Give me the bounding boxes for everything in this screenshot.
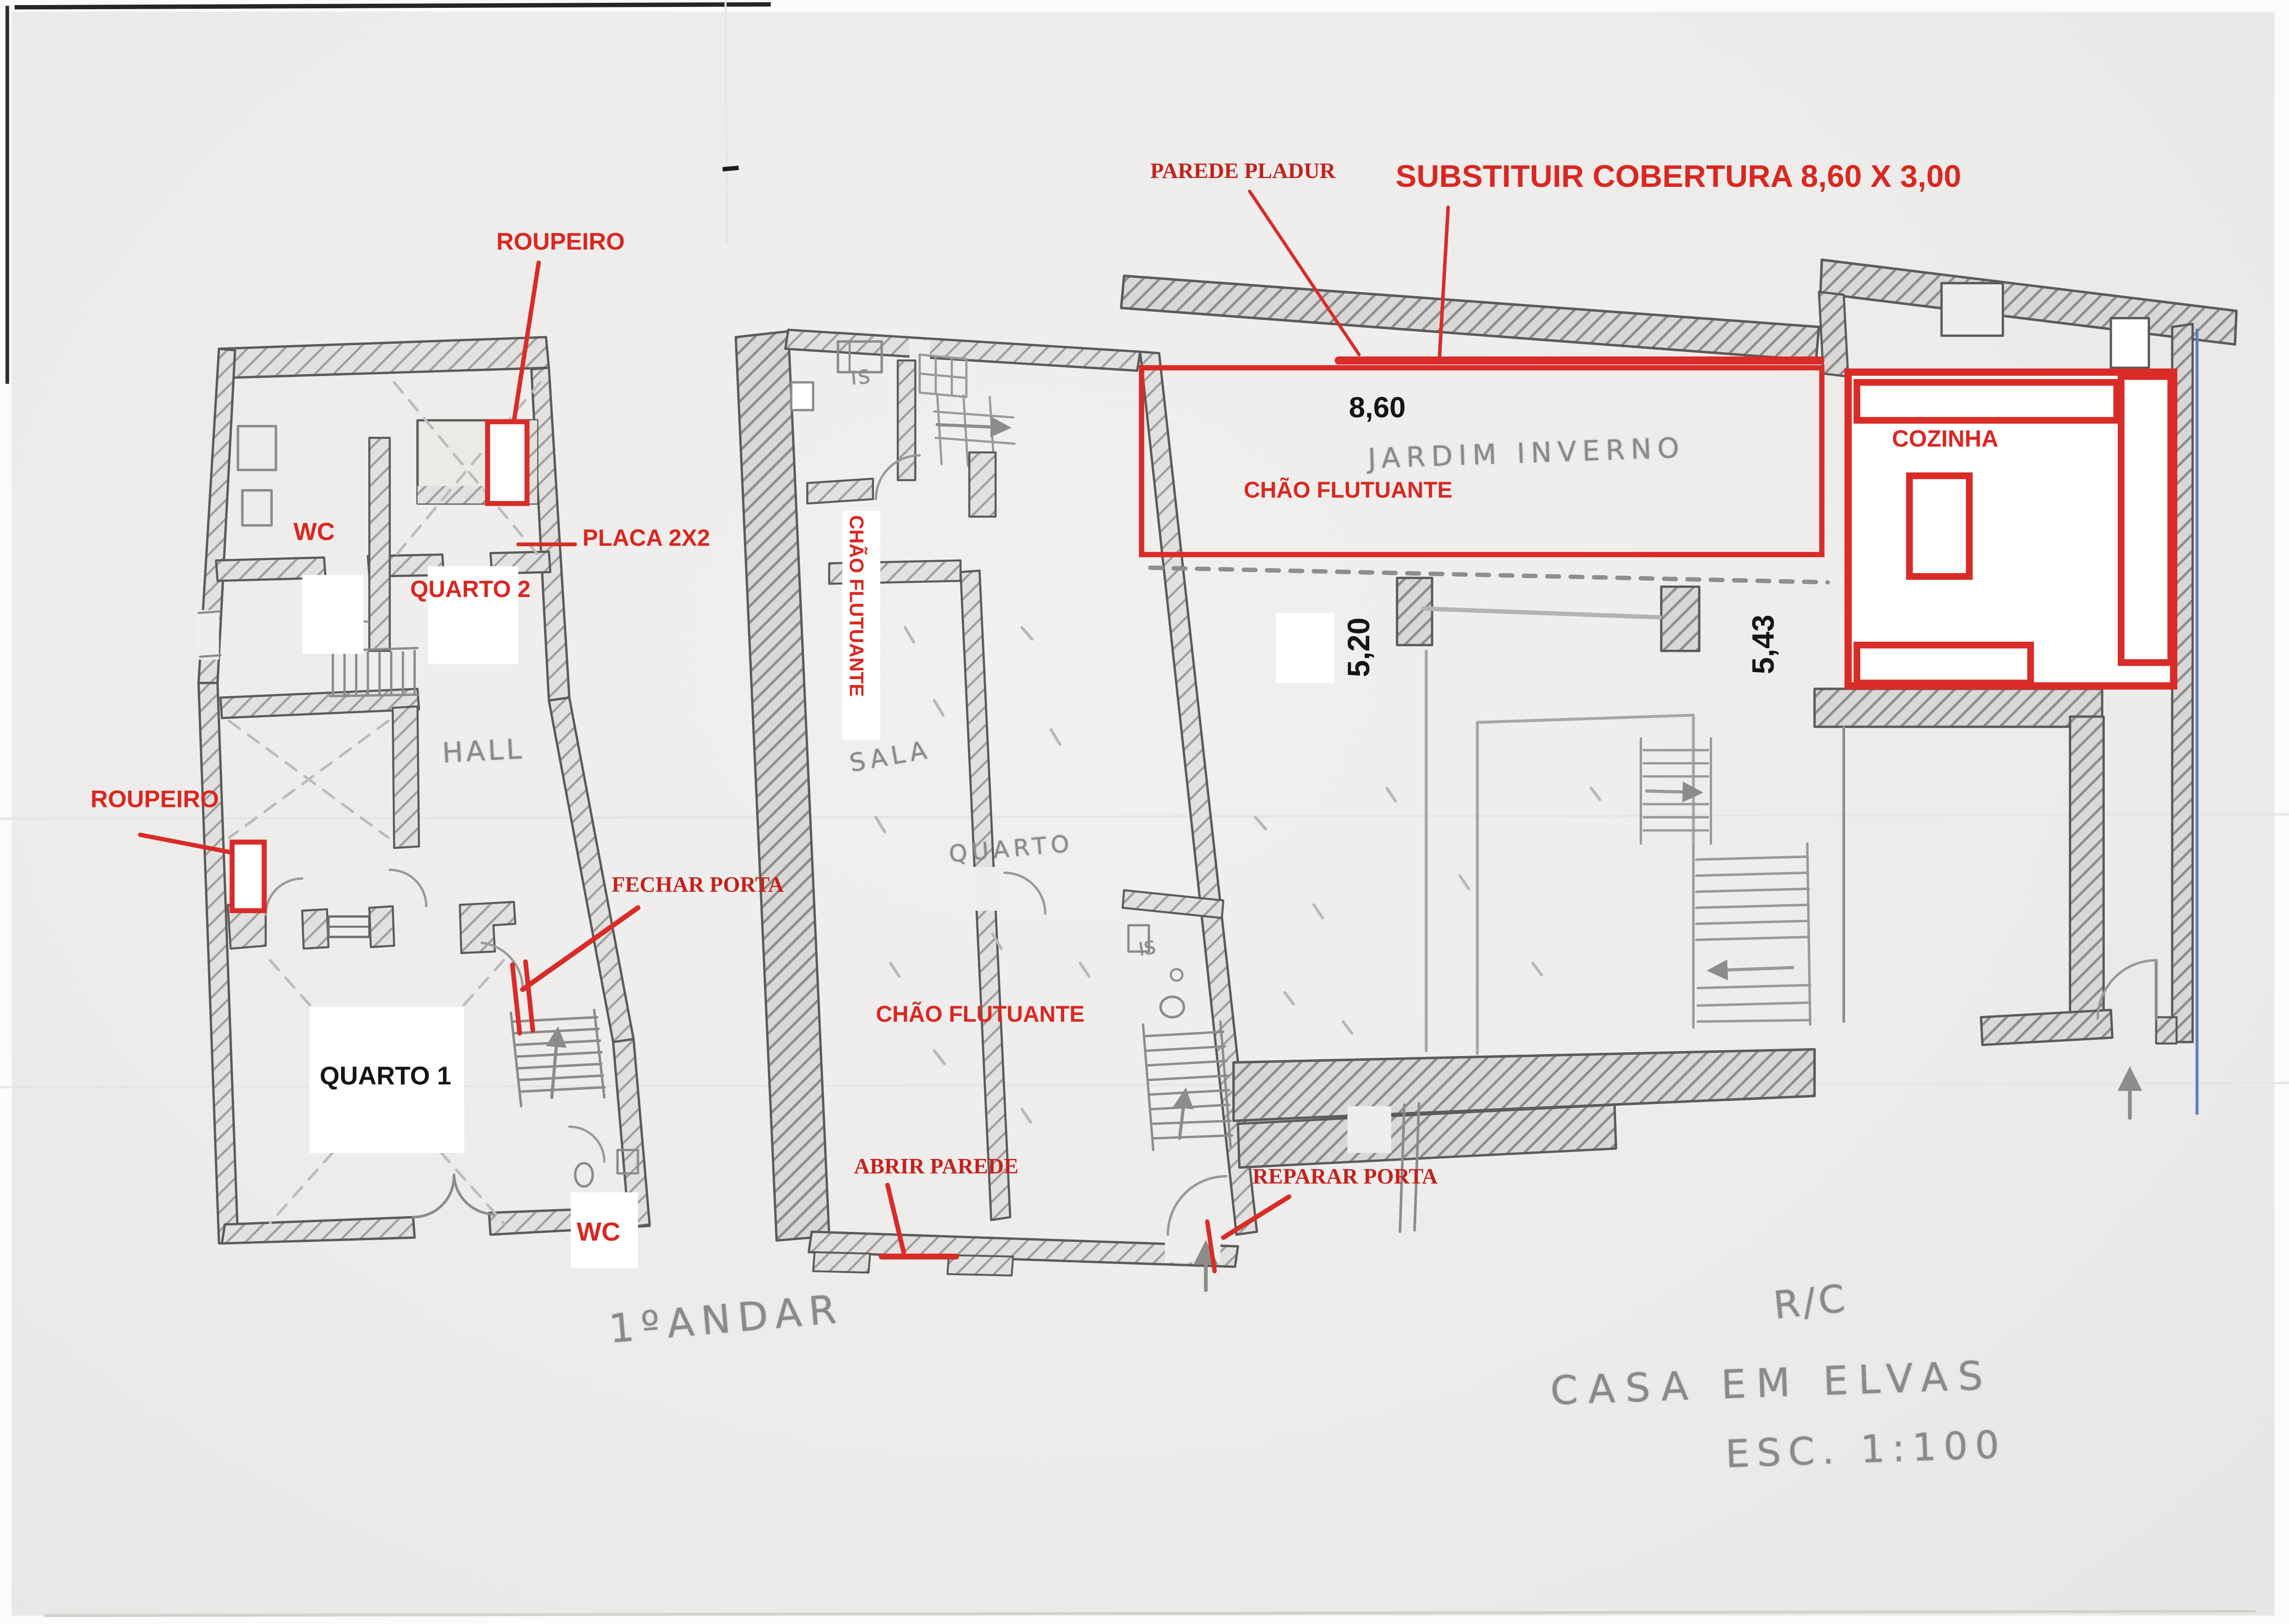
roupeiro-left-box [232, 842, 264, 911]
dimension-5-43: 5,43 [1749, 615, 1781, 674]
annotation-roupeiro-left: ROUPEIRO [90, 788, 219, 813]
window [2111, 318, 2149, 368]
annotation-substituir-cobertura: SUBSTITUIR COBERTURA 8,60 X 3,00 [1396, 161, 1961, 193]
stairs-lower [511, 1010, 604, 1106]
room-label-is-mid: IS [1138, 937, 1157, 959]
title-floor-rc: R/C [1772, 1280, 1850, 1328]
cozinha-counter-top [1857, 382, 2117, 420]
door-arc [569, 1127, 605, 1162]
direction-arrow [937, 425, 1007, 428]
stairs-big [1693, 843, 1810, 1027]
door-gap [1348, 1106, 1391, 1153]
dimension-8-60: 8,60 [1349, 394, 1406, 424]
cozinha-counter-bottom [1857, 645, 2031, 683]
annotation-fechar-porta: FECHAR PORTA [611, 876, 784, 899]
wall-right-upper [531, 368, 569, 700]
cozinha-island [1910, 476, 1970, 576]
pillar [1661, 587, 1699, 651]
annotation-chao-flutuante-jardim: CHÃO FLUTUANTE [1244, 480, 1452, 504]
stairs-small [1641, 739, 1711, 844]
door-arc [1004, 873, 1045, 914]
annotation-parede-pladur: PAREDE PLADUR [1150, 162, 1336, 185]
wall-right-mid [549, 698, 633, 1042]
wall-bottom-left [222, 1217, 415, 1243]
room-label-quarto2: QUARTO 2 [410, 579, 531, 604]
roupeiro-top-box [488, 422, 527, 503]
correction-patch [1276, 613, 1335, 683]
faint-wall-line [1423, 609, 1660, 617]
window-gap [197, 610, 219, 660]
dashed-wall-line [1150, 568, 1828, 583]
interior-room-outline [1477, 715, 1693, 1054]
room-label-wc-top: WC [294, 519, 335, 545]
toilet-fixture [1161, 997, 1184, 1017]
annotation-roupeiro-top: ROUPEIRO [497, 231, 625, 256]
entry-door-arc [454, 1175, 495, 1214]
entry-door-arc [413, 1176, 454, 1218]
room-label-wc-bottom: WC [576, 1218, 620, 1246]
annotation-chao-flutuante-corridor: CHÃO FLUTUANTE [845, 515, 866, 697]
sink-fixture [238, 426, 276, 470]
annotation-abrir-parede: ABRIR PAREDE [854, 1157, 1019, 1180]
dimension-5-20: 5,20 [1344, 617, 1377, 677]
cozinha-counter-right [2121, 376, 2171, 663]
toilet-fixture [575, 1163, 593, 1187]
room-label-cozinha: COZINHA [1892, 429, 1999, 454]
wall-top [219, 337, 549, 378]
roof-band [1121, 276, 1819, 360]
pillar [1397, 578, 1432, 645]
correction-patch [302, 575, 364, 654]
pen-dash-mark [723, 168, 739, 169]
scanned-floor-plan-page: PAREDE PLADUR SUBSTITUIR COBERTURA 8,60 … [0, 0, 2289, 1624]
room-label-hall: HALL [442, 736, 526, 770]
door-arc [266, 878, 302, 915]
chimney [1941, 283, 2003, 336]
door-arc [390, 870, 426, 906]
toilet-fixture [242, 490, 271, 525]
leader-parede-pladur [1250, 191, 1359, 354]
room-label-quarto1: QUARTO 1 [320, 1063, 451, 1089]
cozinha-layout [1848, 372, 2174, 686]
door-gap [972, 867, 999, 911]
wall-patio-bottom [1981, 1010, 2113, 1045]
wall-fixture [791, 382, 813, 410]
wall-left-lower [198, 683, 238, 1243]
wall-patio-right [2070, 716, 2104, 1027]
ground-floor-left-sketch [736, 330, 1257, 1290]
room-label-is-top: IS [850, 368, 872, 390]
fechar-porta-mark [512, 965, 520, 1033]
annotation-reparar-porta: REPARAR PORTA [1252, 1168, 1438, 1191]
title-scale: ESC. 1:100 [1725, 1427, 2007, 1477]
neighbor-wall [736, 331, 829, 1241]
door-arc [1168, 1176, 1227, 1235]
wall-under-cozinha [1815, 689, 2102, 727]
annotation-placa-2x2: PLACA 2X2 [582, 528, 710, 553]
leader-substituir-cobertura [1439, 207, 1448, 359]
annotation-chao-flutuante-room: CHÃO FLUTUANTE [876, 1004, 1085, 1027]
